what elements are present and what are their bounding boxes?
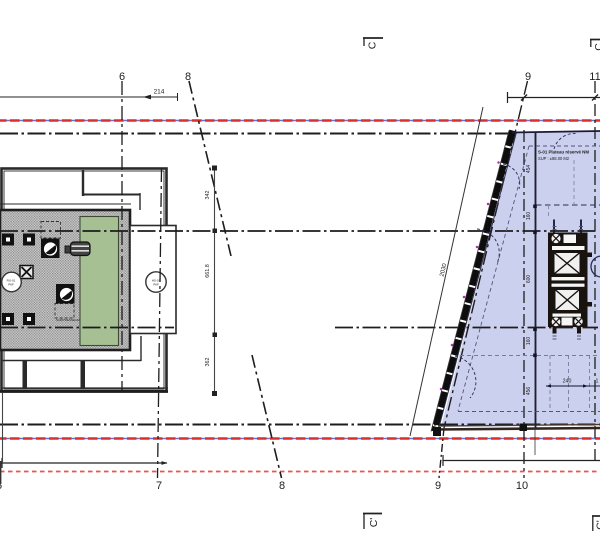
svg-text:C: C: [593, 43, 600, 51]
svg-text:362: 362: [205, 358, 211, 367]
svg-text:6: 6: [119, 71, 125, 83]
svg-text:342: 342: [205, 191, 211, 200]
svg-text:SURPRESSEUR: SURPRESSEUR: [56, 318, 80, 322]
svg-text:600: 600: [526, 275, 532, 284]
svg-text:11: 11: [589, 71, 600, 83]
svg-text:7: 7: [156, 480, 162, 492]
svg-text:PAF: PAF: [8, 283, 14, 287]
svg-text:160: 160: [526, 212, 532, 221]
svg-text:8: 8: [185, 71, 191, 83]
svg-text:456: 456: [526, 387, 532, 396]
svg-text:454: 454: [526, 165, 532, 174]
svg-text:C': C': [595, 520, 600, 530]
svg-text:10: 10: [516, 480, 528, 492]
svg-text:661.8: 661.8: [205, 264, 211, 278]
svg-text:8: 8: [279, 480, 285, 492]
svg-text:160: 160: [526, 337, 532, 346]
svg-text:C: C: [367, 41, 379, 49]
svg-text:SUP : ±88.00 M2: SUP : ±88.00 M2: [538, 156, 570, 161]
svg-text:S-01 Plateau réservé NM: S-01 Plateau réservé NM: [538, 150, 589, 155]
svg-text:240: 240: [563, 379, 572, 385]
svg-text:PAF: PAF: [153, 283, 159, 287]
svg-text:1: 1: [596, 379, 599, 385]
svg-text:214: 214: [154, 89, 165, 96]
svg-text:C': C': [368, 518, 380, 528]
svg-text:9: 9: [435, 480, 441, 492]
svg-text:9: 9: [525, 71, 531, 83]
